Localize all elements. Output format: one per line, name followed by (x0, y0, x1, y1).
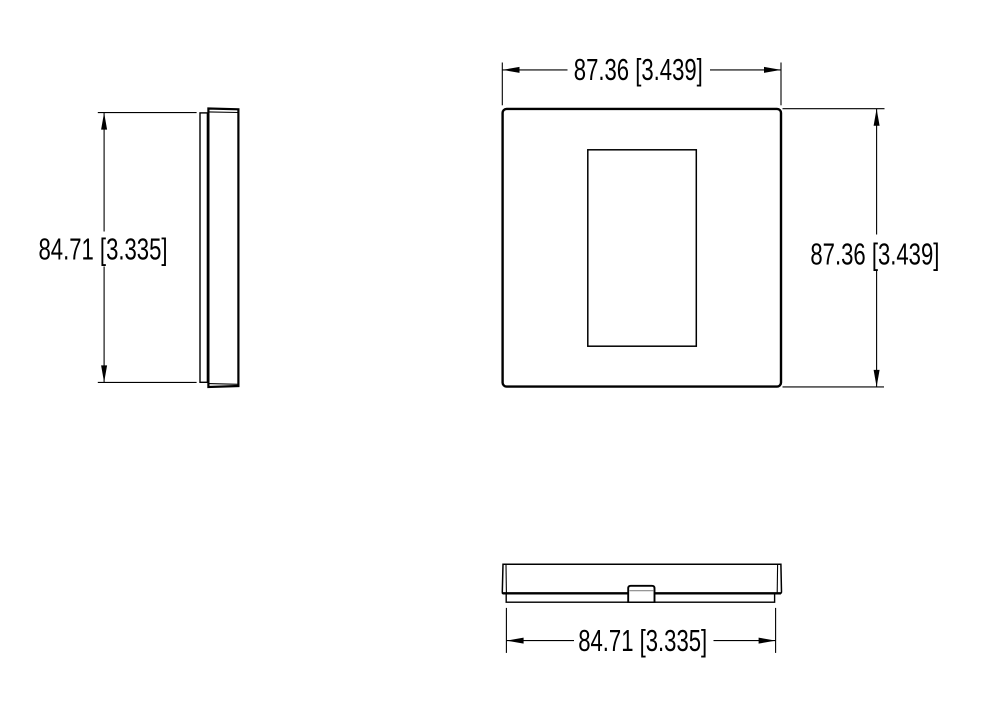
svg-text:84.71 [3.335]: 84.71 [3.335] (578, 623, 707, 658)
svg-text:84.71 [3.335]: 84.71 [3.335] (39, 232, 168, 267)
svg-text:87.36 [3.439]: 87.36 [3.439] (810, 236, 939, 271)
svg-text:87.36 [3.439]: 87.36 [3.439] (574, 52, 703, 87)
